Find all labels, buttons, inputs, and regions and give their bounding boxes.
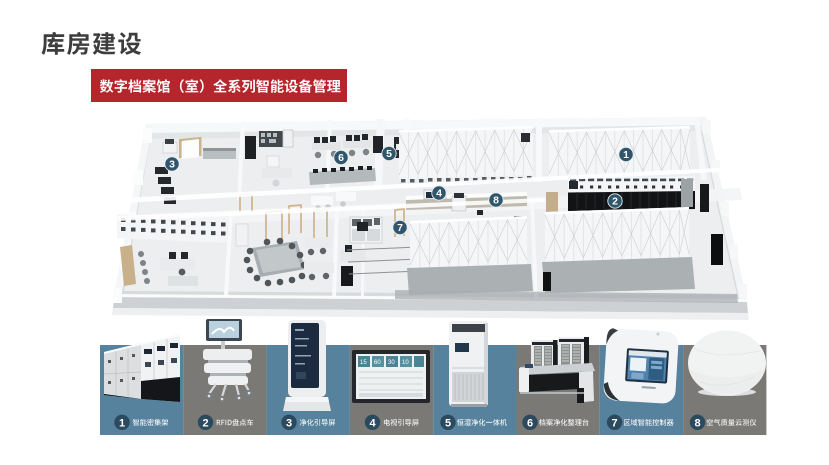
svg-text:7: 7: [612, 417, 618, 429]
svg-text:8: 8: [694, 417, 700, 429]
svg-text:7: 7: [397, 222, 403, 234]
svg-text:60: 60: [374, 360, 381, 366]
svg-text:15: 15: [360, 360, 367, 366]
svg-text:10: 10: [402, 360, 409, 366]
svg-text:4: 4: [436, 188, 442, 200]
svg-text:2: 2: [612, 196, 618, 208]
svg-text:3: 3: [286, 417, 292, 429]
svg-text:6: 6: [527, 417, 533, 429]
svg-text:5: 5: [445, 417, 451, 429]
svg-text:5: 5: [386, 148, 392, 160]
svg-text:8: 8: [493, 195, 499, 207]
svg-text:3: 3: [169, 159, 175, 171]
svg-text:2: 2: [202, 417, 208, 429]
svg-text:6: 6: [338, 152, 344, 164]
svg-text:30: 30: [388, 360, 395, 366]
svg-text:4: 4: [369, 417, 376, 429]
svg-text:1: 1: [623, 149, 629, 161]
svg-text:1: 1: [119, 417, 125, 429]
